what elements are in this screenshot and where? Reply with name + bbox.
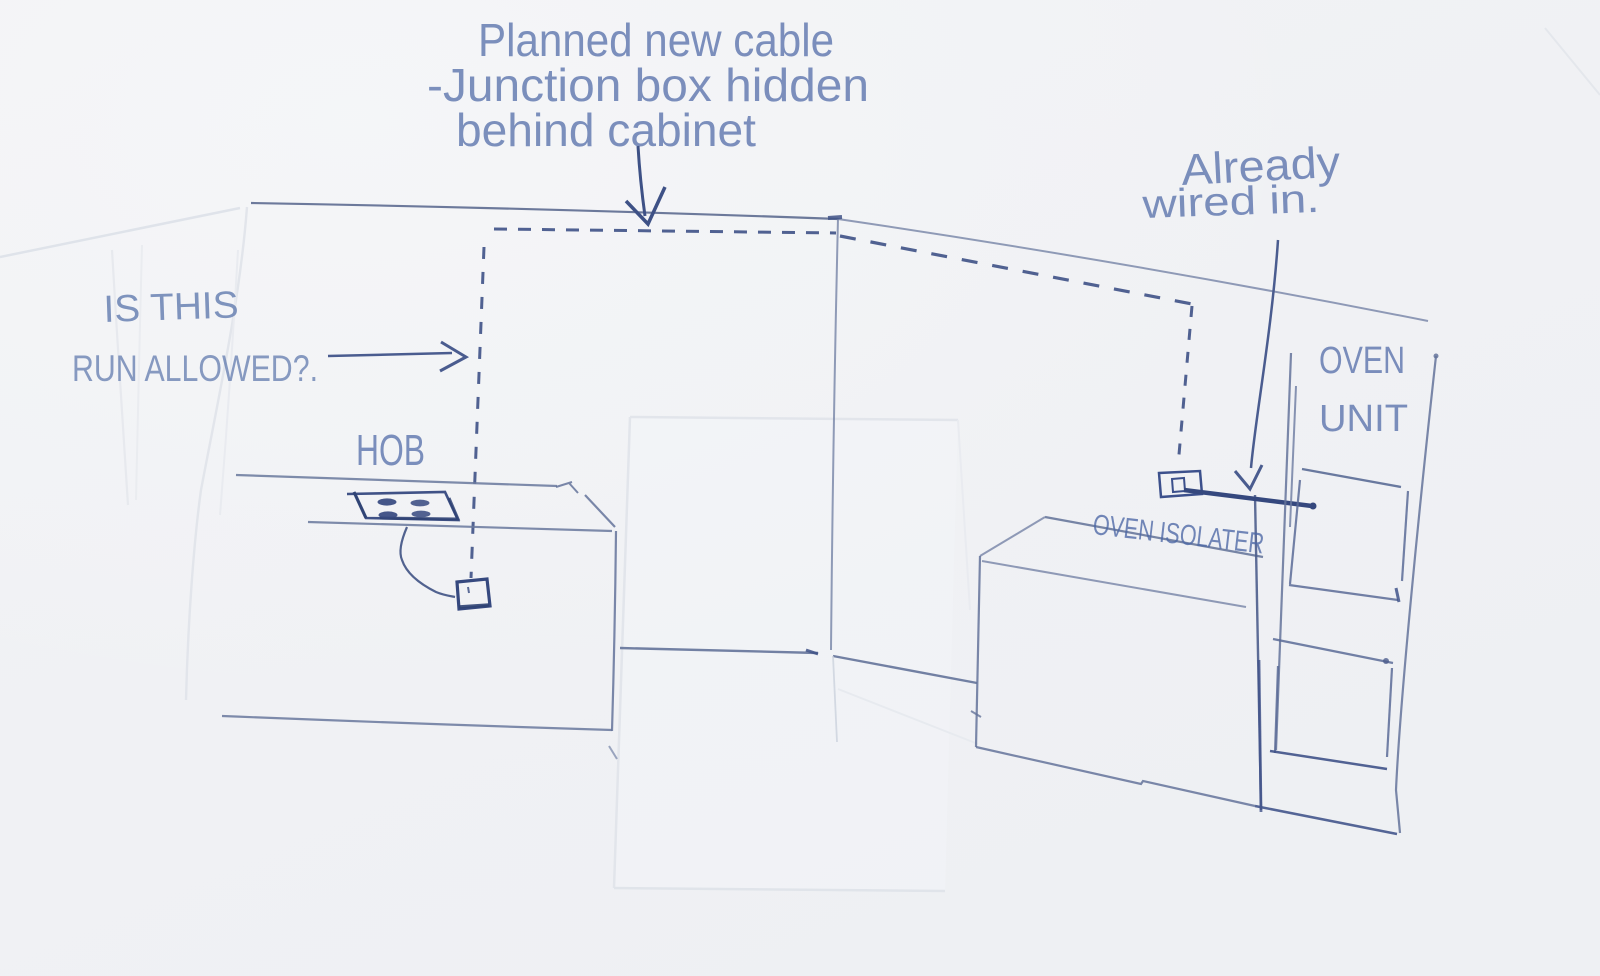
svg-text:RUN ALLOWED?.: RUN ALLOWED?.	[72, 348, 318, 389]
svg-text:HOB: HOB	[356, 426, 425, 475]
svg-text:wired in.: wired in.	[1141, 177, 1321, 227]
svg-text:OVEN: OVEN	[1319, 340, 1405, 382]
svg-text:behind cabinet: behind cabinet	[456, 104, 756, 156]
svg-text:UNIT: UNIT	[1319, 398, 1408, 440]
svg-text:IS THIS: IS THIS	[103, 284, 239, 331]
